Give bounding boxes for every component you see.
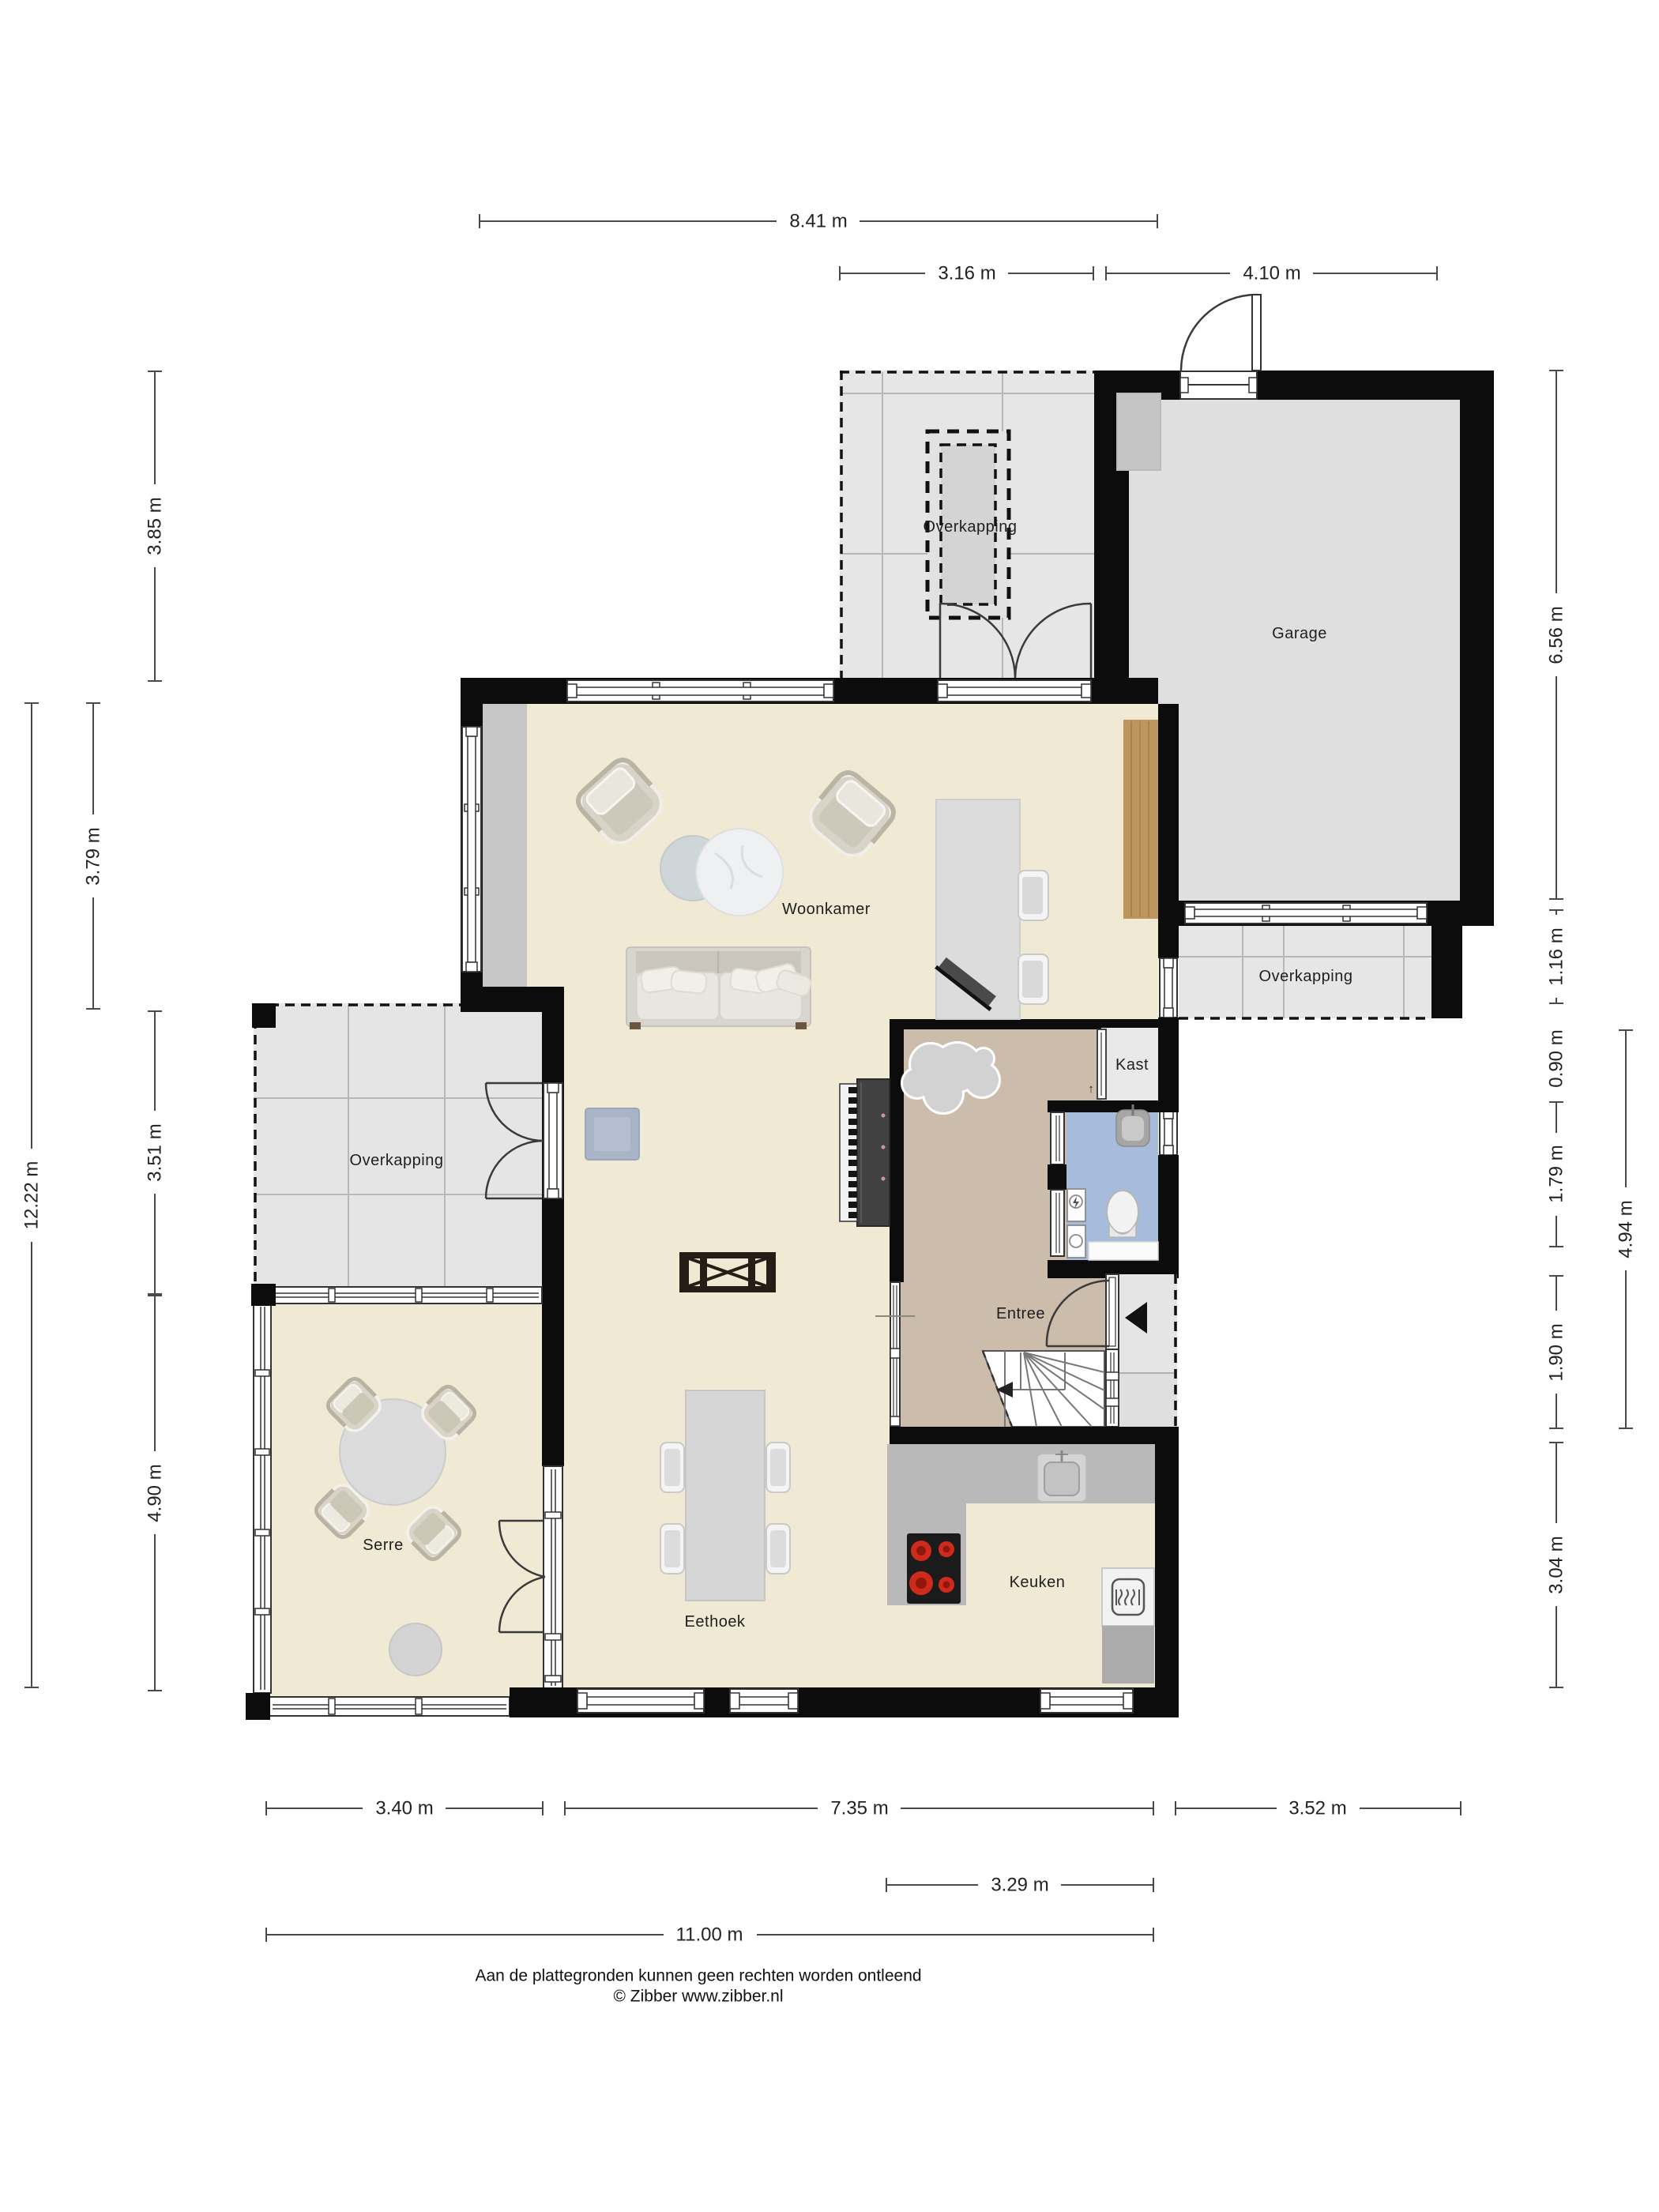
svg-text:1.79 m: 1.79 m xyxy=(1546,1145,1567,1202)
svg-text:8.41 m: 8.41 m xyxy=(789,211,847,232)
svg-text:4.90 m: 4.90 m xyxy=(145,1464,166,1522)
svg-text:4.10 m: 4.10 m xyxy=(1243,263,1300,284)
svg-text:3.85 m: 3.85 m xyxy=(145,497,166,555)
svg-text:Garage: Garage xyxy=(1272,625,1327,642)
svg-text:Overkapping: Overkapping xyxy=(350,1152,444,1169)
svg-text:3.40 m: 3.40 m xyxy=(375,1798,433,1819)
svg-text:Overkapping: Overkapping xyxy=(1259,968,1353,985)
svg-text:Woonkamer: Woonkamer xyxy=(782,901,871,918)
svg-text:3.16 m: 3.16 m xyxy=(938,263,995,284)
svg-text:Entree: Entree xyxy=(996,1305,1045,1322)
svg-text:Overkapping: Overkapping xyxy=(924,518,1018,536)
svg-text:11.00 m: 11.00 m xyxy=(676,1924,743,1946)
svg-text:7.35 m: 7.35 m xyxy=(830,1798,888,1819)
svg-text:3.04 m: 3.04 m xyxy=(1546,1536,1567,1593)
svg-text:© Zibber www.zibber.nl: © Zibber www.zibber.nl xyxy=(613,1988,783,2006)
svg-text:3.79 m: 3.79 m xyxy=(83,827,104,885)
svg-text:1.90 m: 1.90 m xyxy=(1546,1323,1567,1381)
svg-text:3.52 m: 3.52 m xyxy=(1288,1798,1346,1819)
svg-text:6.56 m: 6.56 m xyxy=(1546,606,1567,664)
svg-text:1.16 m: 1.16 m xyxy=(1546,927,1567,985)
svg-text:Eethoek: Eethoek xyxy=(685,1613,746,1631)
svg-text:12.22 m: 12.22 m xyxy=(21,1161,43,1230)
svg-text:3.51 m: 3.51 m xyxy=(145,1123,166,1181)
svg-text:4.94 m: 4.94 m xyxy=(1616,1200,1637,1258)
svg-text:3.29 m: 3.29 m xyxy=(991,1875,1048,1896)
svg-text:0.90 m: 0.90 m xyxy=(1546,1029,1567,1087)
svg-text:Kast: Kast xyxy=(1115,1056,1149,1074)
svg-text:Keuken: Keuken xyxy=(1010,1574,1066,1591)
svg-text:Aan de plattegronden kunnen ge: Aan de plattegronden kunnen geen rechten… xyxy=(475,1967,921,1985)
svg-text:↑: ↑ xyxy=(1088,1082,1094,1096)
svg-text:Serre: Serre xyxy=(363,1537,403,1554)
